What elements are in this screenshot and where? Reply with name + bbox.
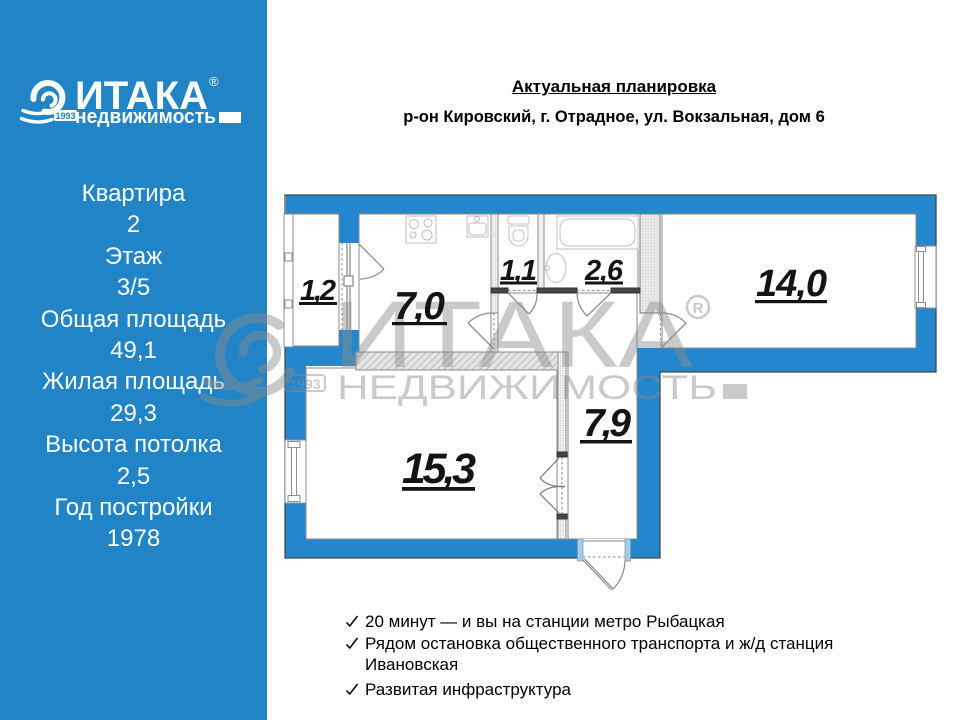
- svg-text:7,0: 7,0: [394, 285, 445, 328]
- svg-text:R: R: [693, 300, 704, 317]
- svg-text:1993: 1993: [289, 376, 320, 392]
- svg-text:14,0: 14,0: [756, 263, 827, 305]
- svg-text:НЕДВИЖИМОСТЬ: НЕДВИЖИМОСТЬ: [337, 369, 717, 407]
- svg-text:7,9: 7,9: [583, 402, 631, 445]
- svg-text:15,3: 15,3: [402, 445, 476, 493]
